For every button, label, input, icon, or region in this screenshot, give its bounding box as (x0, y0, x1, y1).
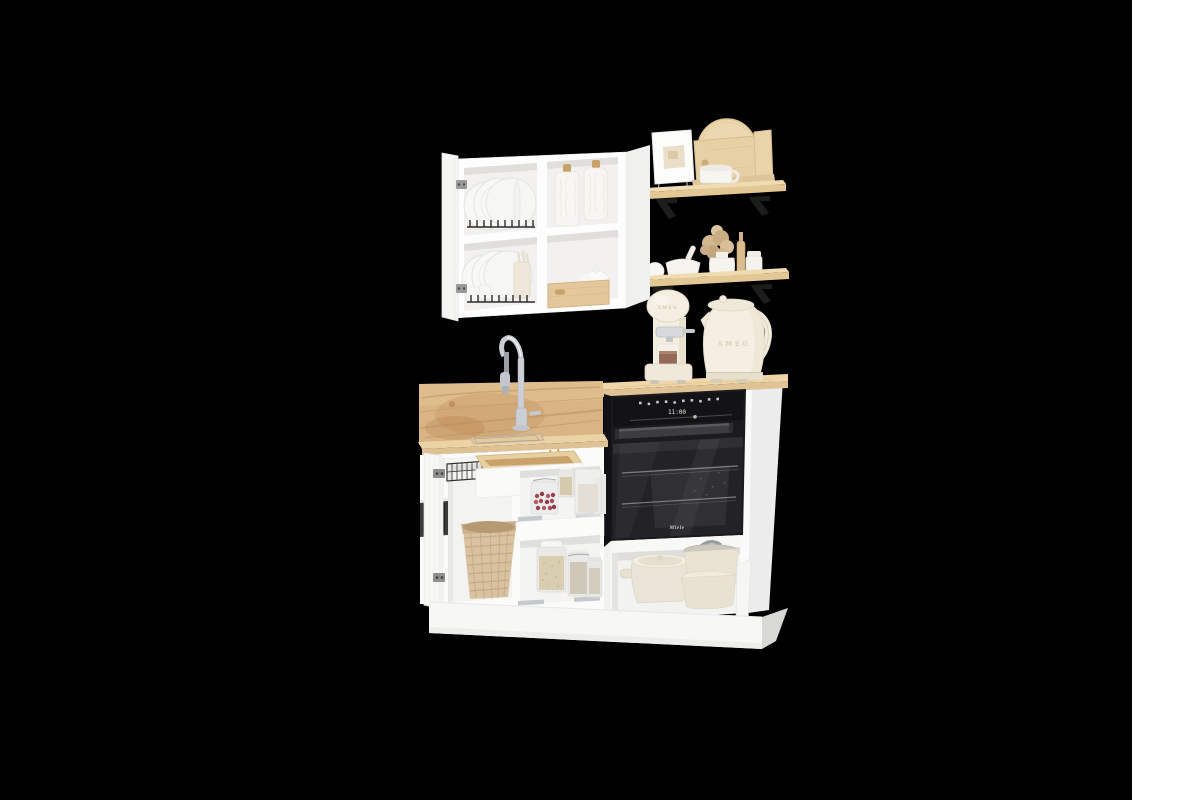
glass-cup-with-coffee (657, 344, 679, 366)
jar-shelves (516, 466, 606, 606)
kettle-brand-label: SMEG (718, 340, 751, 348)
base-cabinet-open-door (424, 453, 445, 609)
oven-side-shadow (604, 394, 611, 547)
jar-glass-3 (587, 557, 602, 597)
jar-oats (537, 541, 566, 592)
oven-door-glass (613, 437, 743, 539)
tall-oven-unit: 11:00 (602, 374, 788, 624)
jar-grains-small (558, 467, 574, 497)
tall-unit-left-stile (604, 543, 611, 620)
upper-wall-cabinet (442, 145, 650, 321)
cabinet-side-panel (626, 145, 650, 308)
dish-rack-upper (464, 178, 536, 230)
oven-clock-display: 11:00 (668, 409, 686, 416)
jar-glass-2 (568, 550, 589, 596)
right-white-panel (1132, 0, 1200, 800)
oven: 11:00 (604, 389, 746, 547)
coffee-brand-label: SMEG (658, 305, 679, 311)
oven-brand-logo: Miele (668, 525, 684, 531)
sink-base-cabinet (420, 447, 606, 612)
kitchen-render: 11:00 (0, 0, 1200, 800)
jar-white-lid (575, 469, 606, 516)
jar-berries (531, 479, 558, 514)
stacked-pots (682, 542, 738, 609)
product-image-canvas: 11:00 (0, 0, 1200, 800)
